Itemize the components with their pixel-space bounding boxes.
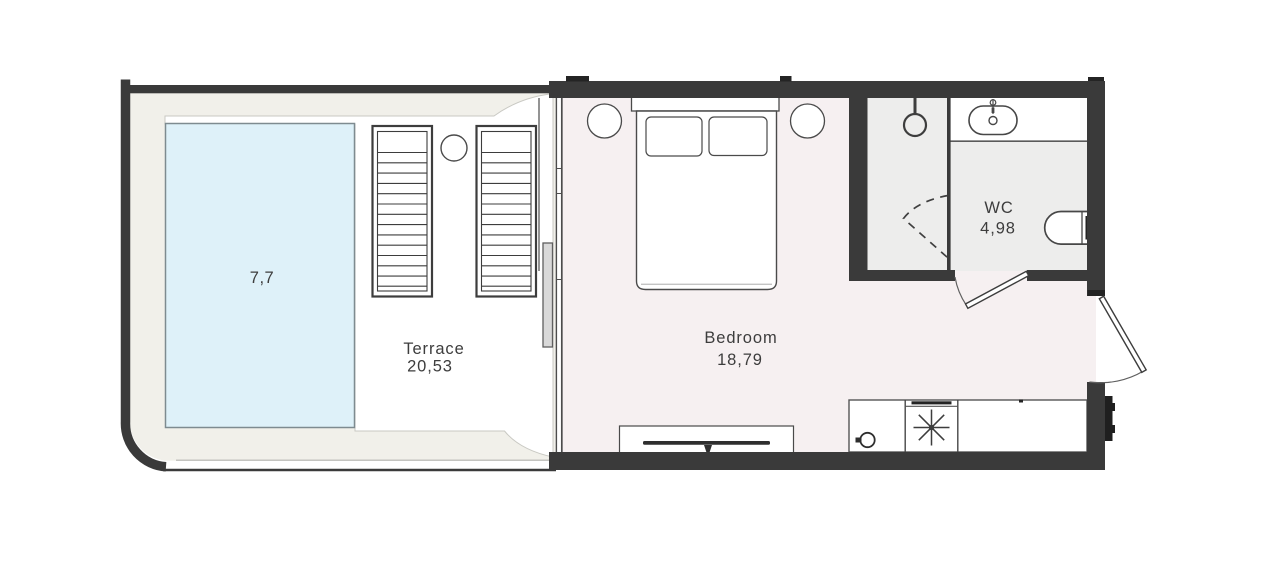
svg-text:WC: WC [984, 199, 1013, 217]
svg-text:Terrace: Terrace [403, 340, 464, 358]
svg-text:20,53: 20,53 [407, 358, 453, 376]
svg-text:18,79: 18,79 [717, 351, 763, 369]
svg-text:4,98: 4,98 [980, 220, 1016, 238]
svg-text:7,7: 7,7 [250, 269, 274, 287]
svg-text:Bedroom: Bedroom [704, 329, 777, 347]
